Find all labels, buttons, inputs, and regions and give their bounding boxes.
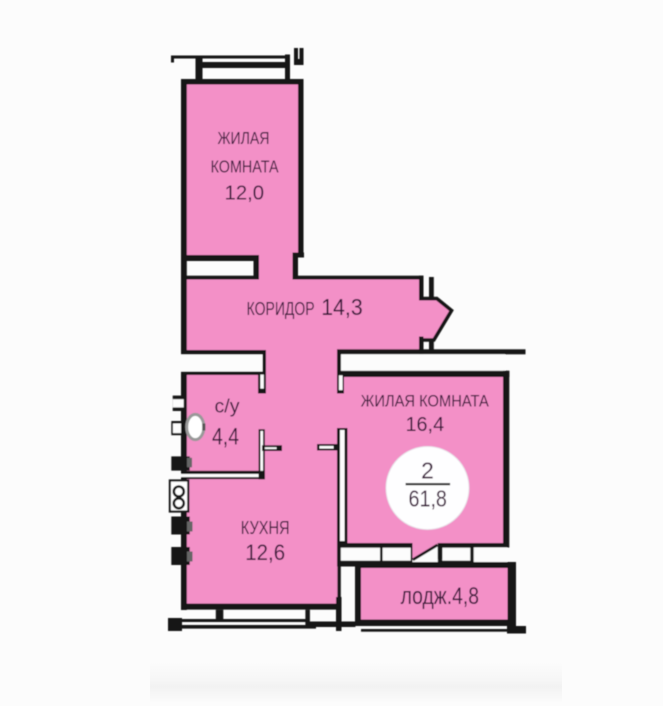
svg-text:лодж.4,8: лодж.4,8	[401, 583, 479, 610]
svg-text:КОМНАТА: КОМНАТА	[211, 156, 279, 176]
svg-text:16,4: 16,4	[406, 414, 445, 436]
svg-text:ЖИЛАЯ КОМНАТА: ЖИЛАЯ КОМНАТА	[361, 393, 489, 411]
svg-text:2: 2	[421, 458, 434, 484]
svg-text:КУХНЯ: КУХНЯ	[241, 517, 290, 538]
svg-text:12,0: 12,0	[225, 182, 265, 204]
svg-text:14,3: 14,3	[321, 294, 363, 320]
svg-text:61,8: 61,8	[408, 485, 447, 511]
svg-text:4,4: 4,4	[212, 423, 239, 450]
svg-text:с/у: с/у	[215, 397, 241, 418]
svg-text:ЖИЛАЯ: ЖИЛАЯ	[218, 128, 270, 148]
svg-text:КОРИДОР: КОРИДОР	[247, 299, 315, 319]
svg-text:12,6: 12,6	[245, 540, 285, 565]
